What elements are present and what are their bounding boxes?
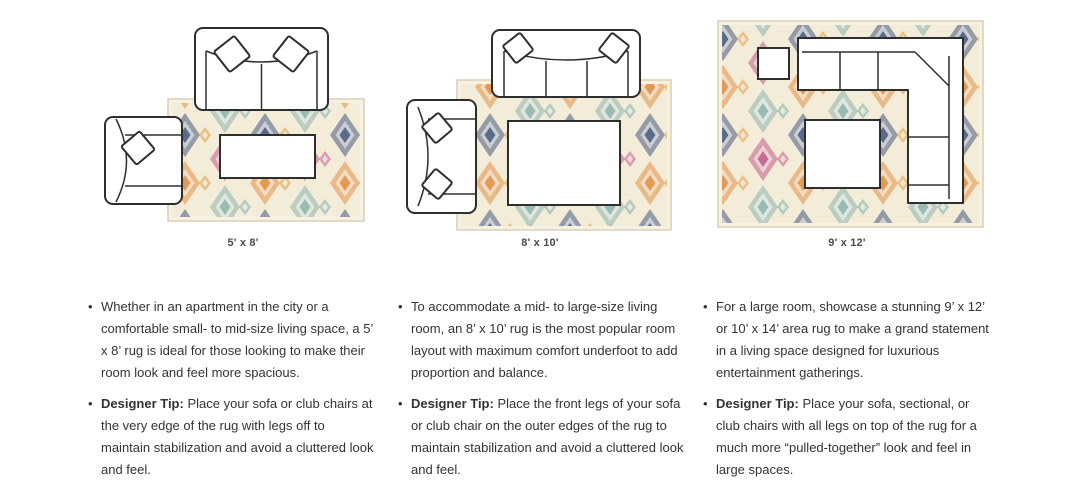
club-chair-top-view bbox=[105, 117, 182, 204]
coffee-table bbox=[508, 121, 620, 205]
rug-size-label-5x8: 5' x 8' bbox=[93, 237, 393, 249]
room-layout-5x8-illustration bbox=[85, 15, 385, 235]
room-layout-9x12-illustration bbox=[703, 15, 1003, 235]
rug-size-label-8x10: 8' x 10' bbox=[390, 237, 690, 249]
designer-tip-label: Designer Tip: bbox=[716, 396, 799, 411]
coffee-table bbox=[805, 120, 880, 188]
note-item: Designer Tip: Place your sofa, sectional… bbox=[702, 393, 991, 481]
designer-tip-label: Designer Tip: bbox=[101, 396, 184, 411]
note-item: Whether in an apartment in the city or a… bbox=[87, 296, 376, 384]
designer-tip-label: Designer Tip: bbox=[411, 396, 494, 411]
note-text: For a large room, showcase a stunning 9’… bbox=[716, 299, 989, 380]
note-item: To accommodate a mid- to large-size livi… bbox=[397, 296, 686, 384]
rug-size-label-9x12: 9' x 12' bbox=[697, 237, 997, 249]
coffee-table bbox=[220, 135, 315, 178]
note-item: Designer Tip: Place the front legs of yo… bbox=[397, 393, 686, 481]
sofa-top-view bbox=[195, 28, 328, 110]
note-text: Whether in an apartment in the city or a… bbox=[101, 299, 373, 380]
room-diagram-9x12: 9' x 12' bbox=[703, 15, 1003, 265]
sofa-top-view bbox=[492, 30, 640, 97]
room-layout-8x10-illustration bbox=[390, 15, 690, 235]
notes-5x8: Whether in an apartment in the city or a… bbox=[87, 296, 376, 490]
side-table bbox=[758, 48, 789, 79]
room-diagram-5x8: 5' x 8' bbox=[85, 15, 385, 265]
rug-size-guide: 5' x 8' bbox=[0, 0, 1080, 490]
note-item: Designer Tip: Place your sofa or club ch… bbox=[87, 393, 376, 481]
notes-9x12: For a large room, showcase a stunning 9’… bbox=[702, 296, 991, 490]
room-diagram-8x10: 8' x 10' bbox=[390, 15, 690, 265]
notes-8x10: To accommodate a mid- to large-size livi… bbox=[397, 296, 686, 490]
note-item: For a large room, showcase a stunning 9’… bbox=[702, 296, 991, 384]
loveseat-top-view bbox=[407, 100, 476, 213]
note-text: To accommodate a mid- to large-size livi… bbox=[411, 299, 678, 380]
